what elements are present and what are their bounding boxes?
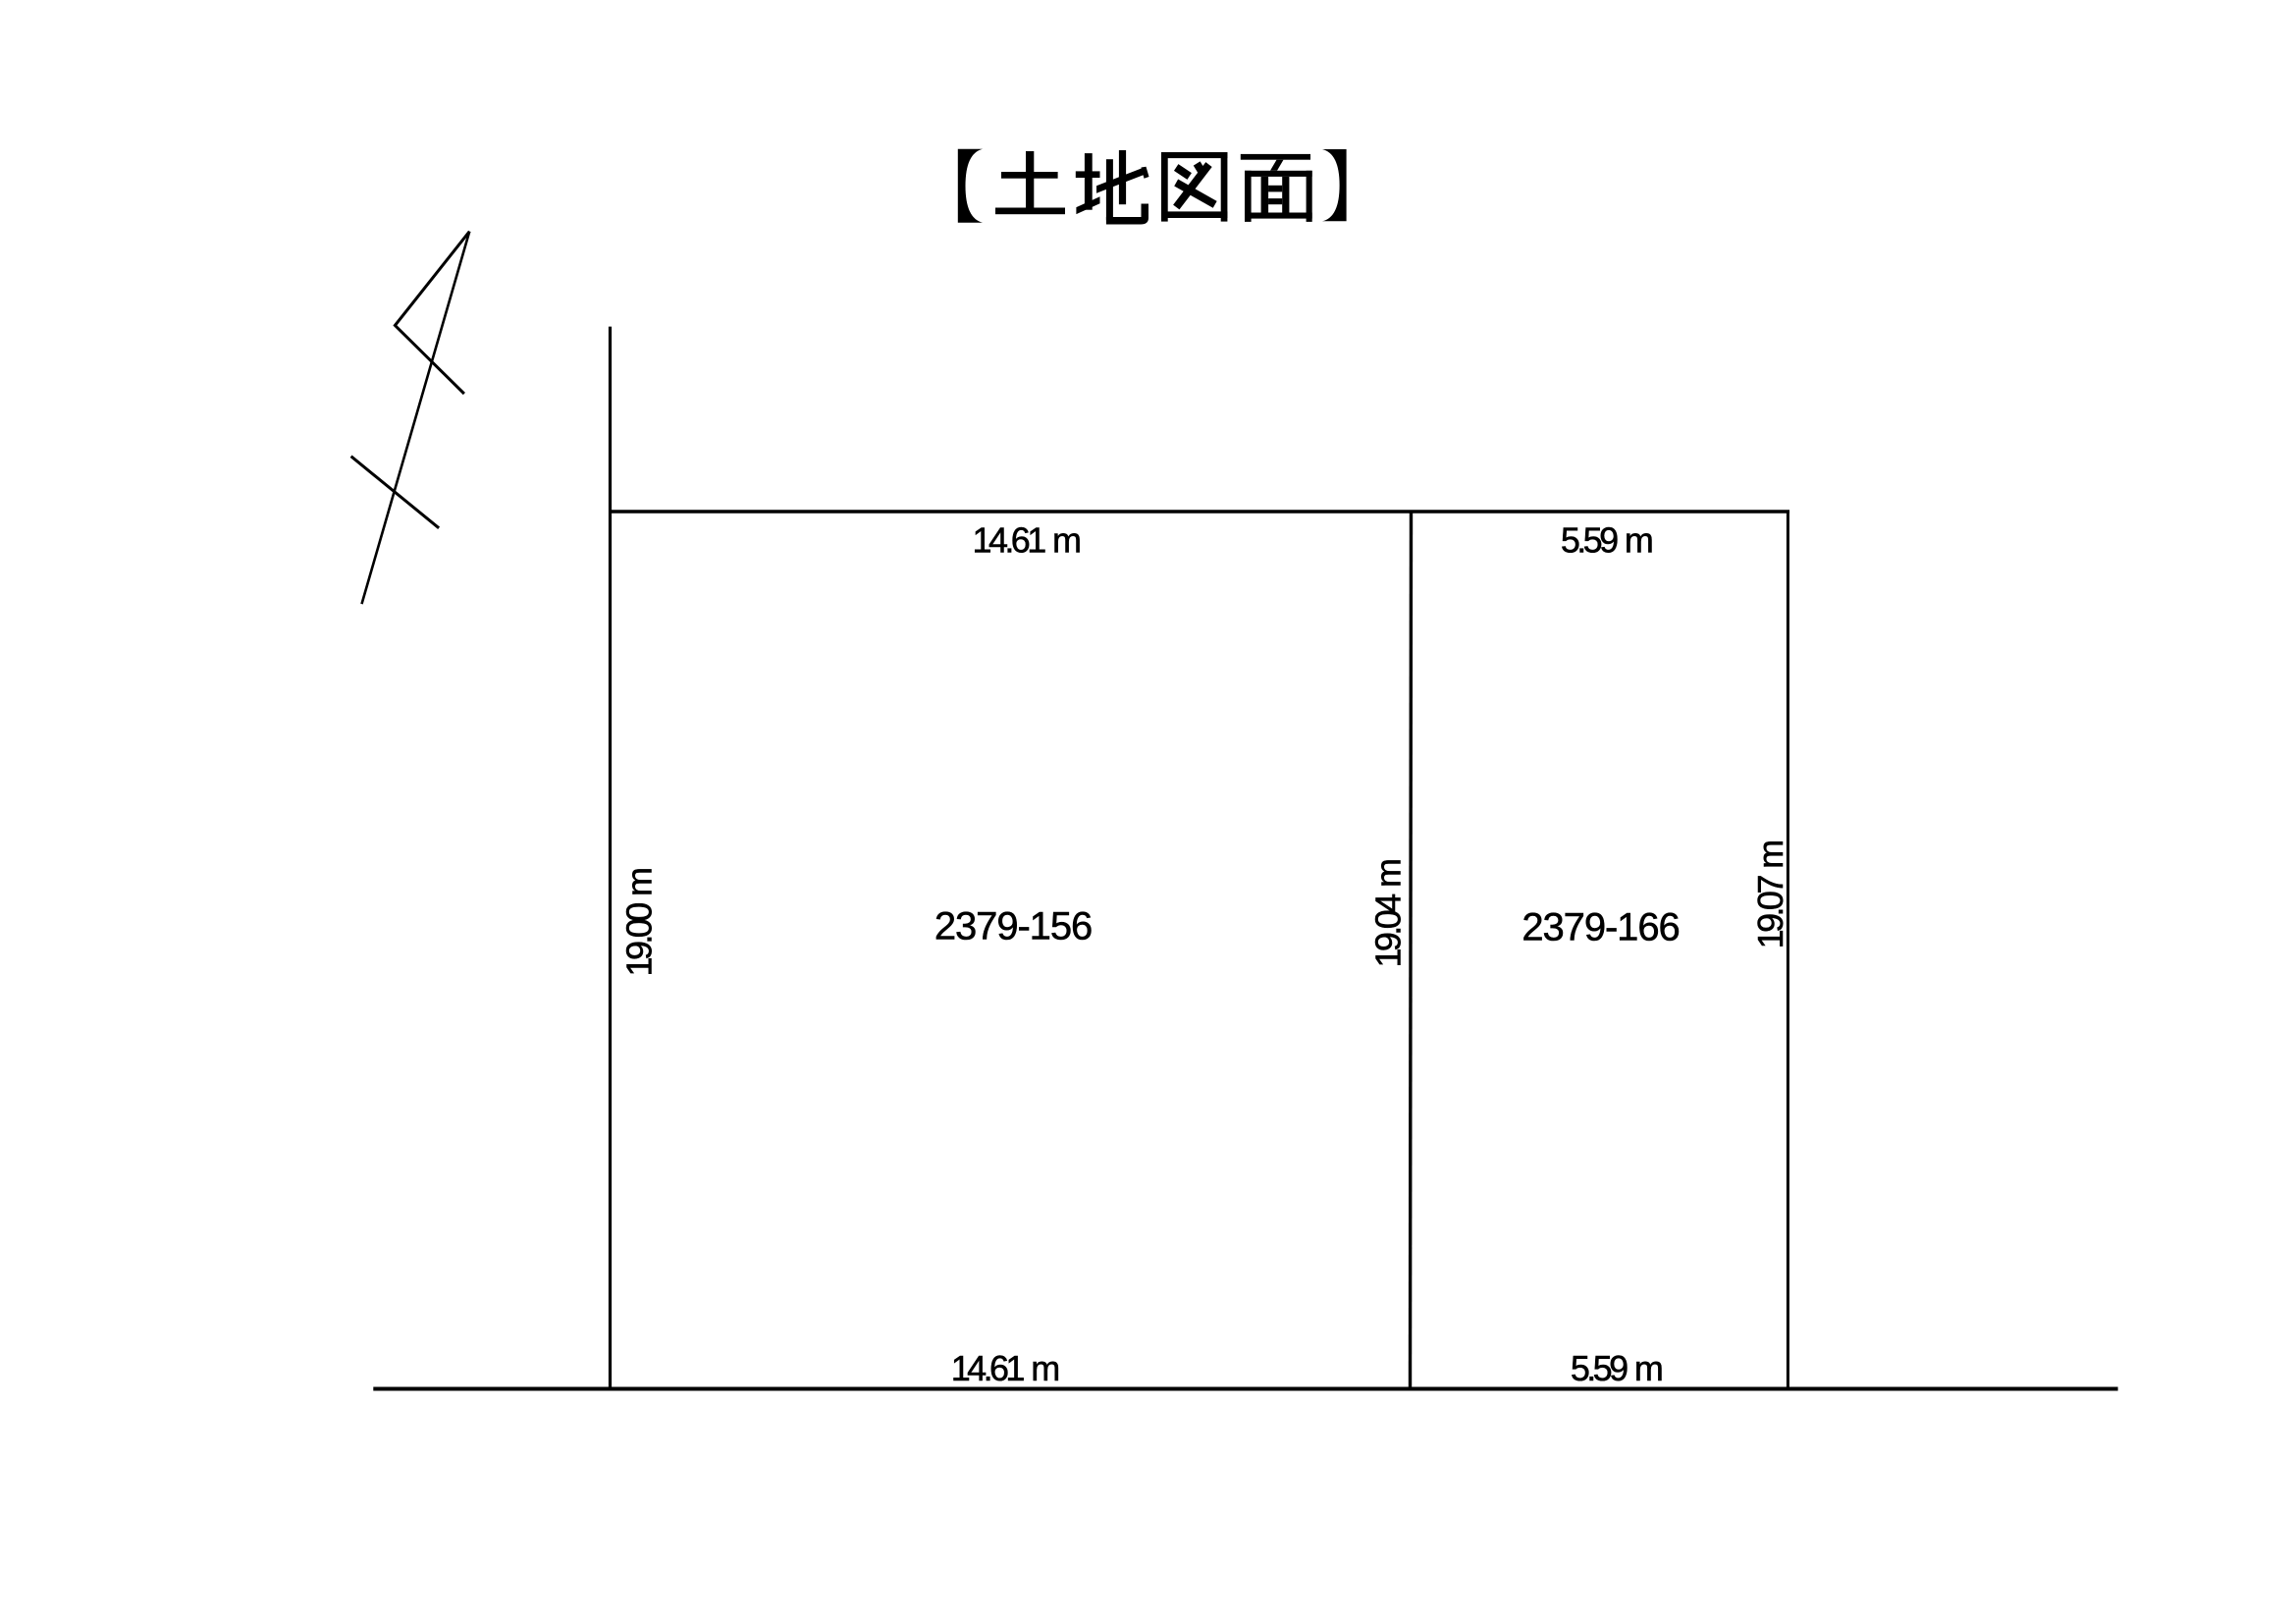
svg-text:5.59 m: 5.59 m bbox=[1561, 520, 1652, 561]
svg-text:2379-156: 2379-156 bbox=[934, 905, 1092, 948]
svg-text:19.04 m: 19.04 m bbox=[1368, 860, 1409, 967]
svg-text:5.59 m: 5.59 m bbox=[1571, 1348, 1662, 1388]
svg-text:14.61 m: 14.61 m bbox=[973, 520, 1080, 561]
svg-text:19.07 m: 19.07 m bbox=[1750, 841, 1790, 948]
svg-text:19.00 m: 19.00 m bbox=[619, 869, 660, 976]
svg-text:14.61 m: 14.61 m bbox=[951, 1348, 1058, 1388]
svg-text:2379-166: 2379-166 bbox=[1522, 906, 1679, 949]
